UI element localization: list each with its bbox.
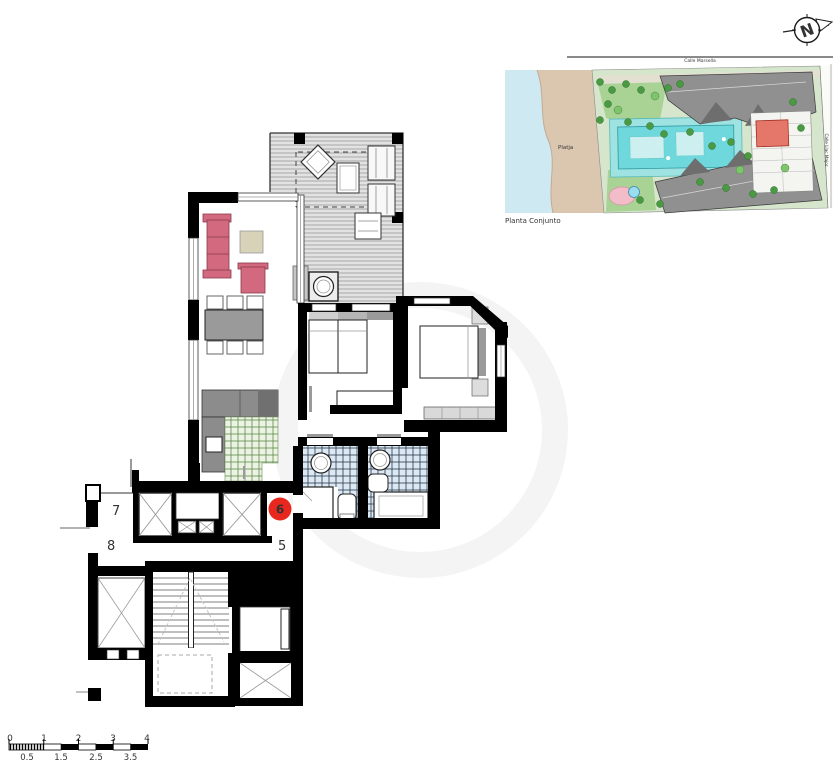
landing-lobby: 7 8 5 6 <box>60 485 292 573</box>
headboard <box>478 328 486 376</box>
street-right-label: Calle Llac Major <box>824 133 829 166</box>
highlighted-unit <box>756 120 789 147</box>
scale-1-5: 1.5 <box>54 753 68 763</box>
coffee-table <box>240 231 263 253</box>
sun-lounger-3 <box>355 213 381 239</box>
elevator-machine-1 <box>178 521 196 533</box>
bathroom-2 <box>368 434 428 520</box>
toilet-2 <box>368 474 388 492</box>
stair-core <box>76 561 303 707</box>
sun-lounger-2 <box>368 184 395 216</box>
scale-2-5: 2.5 <box>89 753 103 763</box>
north-arrow-icon: N <box>783 14 832 46</box>
patio-shaft <box>98 578 145 648</box>
sun-lounger-1 <box>368 146 395 180</box>
staircase <box>153 572 229 648</box>
bedroom-2 <box>420 307 496 419</box>
door-leaf <box>281 609 289 649</box>
scale-bar: 0 1 2 3 4 0.5 1.5 2.5 3.5 <box>7 734 150 763</box>
sofa <box>203 214 231 278</box>
sink-1 <box>311 453 331 473</box>
scale-0-5: 0.5 <box>20 753 34 763</box>
armchair <box>238 263 268 293</box>
elevator-machine-2 <box>199 521 214 533</box>
single-bed-2 <box>338 320 367 373</box>
scale-0: 0 <box>7 734 13 744</box>
site-plan-inset: Platja Calle Marsella Calle Llac Major P… <box>505 58 833 225</box>
label-unit-7: 7 <box>112 504 120 519</box>
terrace-deck <box>270 133 403 308</box>
bathroom-1 <box>298 434 358 520</box>
dining-table <box>205 310 263 340</box>
unit-6-marker: 6 <box>269 498 292 521</box>
dining-set <box>205 296 263 354</box>
elevator-shaft-2 <box>223 493 261 536</box>
double-bed <box>420 326 478 378</box>
scale-3-5: 3.5 <box>124 753 138 763</box>
label-unit-5: 5 <box>278 539 286 554</box>
site-plan-caption: Planta Conjunto <box>505 217 561 225</box>
label-unit-8: 8 <box>107 539 115 554</box>
drawing-canvas: N <box>0 0 833 763</box>
kitchen-sink <box>206 437 222 452</box>
bedroom-1 <box>309 312 398 412</box>
beach-label: Platja <box>558 145 573 151</box>
kitchen <box>202 390 278 481</box>
single-bed-1 <box>309 320 338 373</box>
sink-2 <box>370 450 390 470</box>
nightstand-2 <box>472 379 488 396</box>
kitchen-floor <box>225 417 278 481</box>
scale-4: 4 <box>144 734 150 744</box>
street-top-label: Calle Marsella <box>684 58 716 64</box>
kids-pool <box>629 187 640 198</box>
unit-block <box>751 111 814 193</box>
elevator-shaft-1 <box>139 493 172 536</box>
label-unit-6: 6 <box>276 503 284 517</box>
wardrobe <box>424 407 496 419</box>
bottom-shaft <box>228 653 303 706</box>
floorplan-sheet: N <box>0 0 833 763</box>
